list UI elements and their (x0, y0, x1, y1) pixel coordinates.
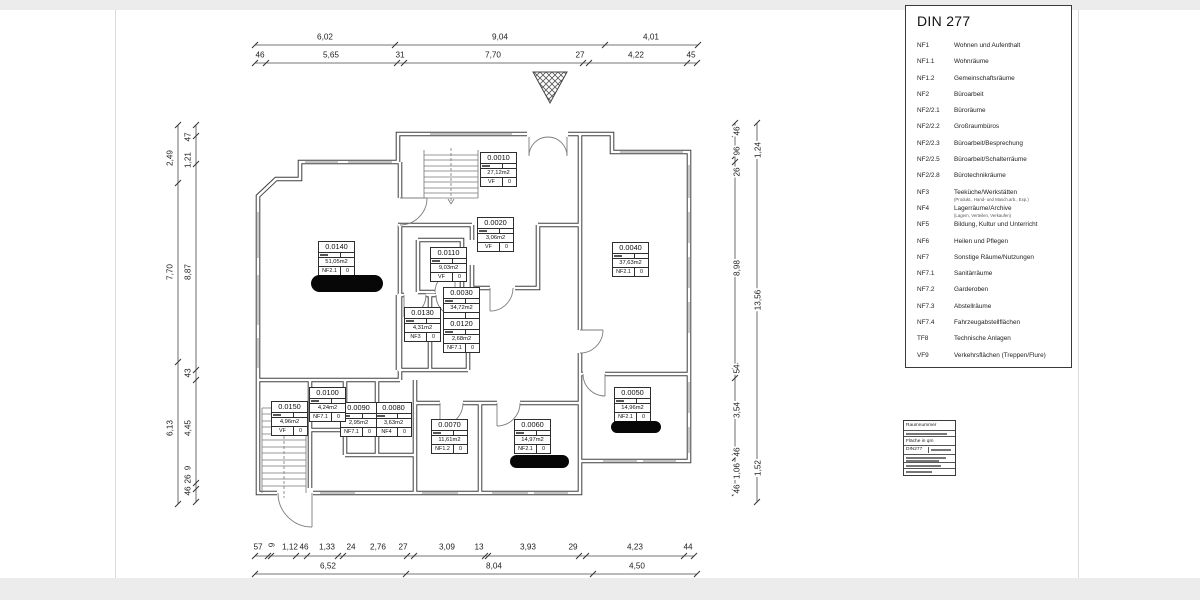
room-usage-row (615, 399, 650, 404)
dimension-label: 4,22 (627, 51, 645, 60)
room-stamp: 0.003034,72m2 (443, 287, 480, 322)
dimension-label: 46 (254, 51, 265, 60)
legend-item-label: Bürotechnikräume (954, 172, 1006, 179)
room-din-value: 0 (500, 243, 513, 251)
legend-item-code: NF2/2.2 (917, 123, 954, 130)
room-stamp: 0.006014,97m2NF2.10 (514, 419, 551, 454)
room-class-row: NF7.10 (310, 413, 345, 421)
legend-item: NF7.3Abstellräume (917, 303, 1071, 319)
dimension-label: 4,01 (642, 33, 660, 42)
room-area: 4,31m2 (405, 324, 440, 333)
room-number: 0.0140 (319, 242, 354, 253)
stamp-key-extra-row (904, 469, 955, 475)
legend-item-label: Bildung, Kultur und Unterricht (954, 221, 1037, 228)
legend-item-code: NF1.1 (917, 58, 954, 65)
room-din-value: 0 (294, 427, 307, 435)
room-din-value: 0 (503, 178, 516, 186)
legend-item: NF5Bildung, Kultur und Unterricht (917, 221, 1071, 237)
room-din-code: VF (431, 273, 453, 281)
room-number: 0.0040 (613, 243, 648, 254)
legend-item-code: NF2 (917, 91, 954, 98)
dimension-label: 46 (733, 446, 742, 457)
room-din-value: 0 (363, 428, 376, 436)
legend-item-label: Wohnen und Aufenthalt (954, 42, 1020, 49)
dimension-label: 7,70 (484, 51, 502, 60)
dimension-label: 27 (574, 51, 585, 60)
legend-item-label: Büroarbeit (954, 91, 984, 98)
drawing-sheet: DIN 277 NF1Wohnen und AufenthaltNF1.1Woh… (0, 0, 1200, 600)
dimension-label: 1,12 (281, 543, 299, 552)
dimension-label: 1,52 (754, 459, 763, 477)
dimension-label: 6,02 (316, 33, 334, 42)
legend-item: NF7.1Sanitärräume (917, 270, 1071, 286)
legend-item-code: NF3 (917, 189, 954, 196)
legend-item-code: NF2/2.8 (917, 172, 954, 179)
room-area: 3,06m2 (478, 234, 513, 243)
room-stamp: 0.00803,63m2NF40 (375, 402, 412, 437)
stamp-key-din: DIN277 (906, 447, 929, 453)
dimension-label: 46 (184, 485, 193, 496)
room-class-row: NF7.10 (341, 428, 376, 436)
dimension-label: 26 (733, 166, 742, 177)
room-usage-row (319, 253, 354, 258)
legend-item-label: Garderoben (954, 286, 988, 293)
top-stair (424, 148, 478, 204)
room-number: 0.0150 (272, 402, 307, 413)
room-din-code: VF (481, 178, 503, 186)
legend-item-code: TF8 (917, 335, 954, 342)
redaction-bar (611, 421, 661, 433)
room-number: 0.0090 (341, 403, 376, 414)
room-area: 4,96m2 (272, 418, 307, 427)
room-din-code: VF (272, 427, 294, 435)
dimension-label: 6,13 (166, 419, 175, 437)
room-din-code: VF (478, 243, 500, 251)
legend-item-code: NF1.2 (917, 75, 954, 82)
legend-item: NF1.2Gemeinschaftsräume (917, 75, 1071, 91)
stamp-key-area: Fläche in qm (904, 437, 955, 446)
room-class-row: NF2.10 (319, 267, 354, 275)
legend-item-code: NF1 (917, 42, 954, 49)
room-din-value: 0 (453, 273, 466, 281)
legend-item: NF3Teeküche/Werkstätten(Produkt., Hand- … (917, 189, 1071, 205)
dimension-label: 43 (184, 367, 193, 378)
room-usage-row (432, 431, 467, 436)
legend-item-label: Büroräume (954, 107, 986, 114)
legend-item-label: Wohnräume (954, 58, 989, 65)
room-stamp-key: Raumnummer Fläche in qm DIN277 (903, 420, 956, 476)
legend-item-code: NF7.3 (917, 303, 954, 310)
dimension-label: 57 (252, 543, 263, 552)
room-area: 3,63m2 (376, 419, 411, 428)
dimension-label: 4,23 (626, 543, 644, 552)
stamp-key-extra-row (904, 455, 955, 463)
room-stamp: 0.01004,24m2NF7.10 (309, 387, 346, 422)
room-din-code: NF2.1 (615, 413, 637, 421)
legend-item-code: NF2/2.3 (917, 140, 954, 147)
room-usage-row (310, 399, 345, 404)
dimension-label: 8,98 (733, 259, 742, 277)
dimension-label: 45 (685, 51, 696, 60)
room-din-code: NF2.1 (515, 445, 537, 453)
room-number: 0.0100 (310, 388, 345, 399)
dimension-label: 9,04 (491, 33, 509, 42)
dimension-label: 1,24 (754, 141, 763, 159)
room-area: 34,72m2 (444, 304, 479, 313)
room-number: 0.0030 (444, 288, 479, 299)
legend-item: NF7.2Garderoben (917, 286, 1071, 302)
legend-item-code: NF7.1 (917, 270, 954, 277)
room-stamp: 0.01504,96m2VF0 (271, 401, 308, 436)
dimension-label: 46 (298, 543, 309, 552)
room-stamp: 0.01304,31m2NF30 (404, 307, 441, 342)
room-din-code: NF7.1 (444, 344, 466, 352)
room-din-code: NF2.1 (613, 268, 635, 276)
legend-item-label: Lagerräume/Archive(Lagern, Verteilen, Ve… (954, 205, 1012, 219)
dimension-label: 96 (733, 145, 742, 156)
room-din-value: 0 (332, 413, 345, 421)
room-din-value: 0 (341, 267, 354, 275)
dimension-label: 46 (733, 483, 742, 494)
legend-item: NF2/2.5Büroarbeit/Schalterräume (917, 156, 1071, 172)
room-din-value: 0 (427, 333, 440, 341)
dimension-label: 2,49 (166, 149, 175, 167)
legend-item-code: NF4 (917, 205, 954, 212)
legend-item-code: NF7.4 (917, 319, 954, 326)
dimension-label: 4,45 (184, 419, 193, 437)
room-din-code: NF2.1 (319, 267, 341, 275)
room-class-row: VF0 (481, 178, 516, 186)
legend-item: NF2Büroarbeit (917, 91, 1071, 107)
legend-item: NF2/2.2Großraumbüros (917, 123, 1071, 139)
dimension-label: 9 (184, 465, 193, 472)
legend-item-label: Abstellräume (954, 303, 991, 310)
redaction-bar (510, 455, 569, 468)
dimension-label: 8,04 (485, 562, 503, 571)
room-number: 0.0060 (515, 420, 550, 431)
door-swings (278, 137, 605, 527)
dimension-label: 3,54 (733, 401, 742, 419)
room-usage-row (444, 330, 479, 335)
room-area: 14,96m2 (615, 404, 650, 413)
room-class-row: NF2.10 (613, 268, 648, 276)
dimension-label: 31 (394, 51, 405, 60)
redaction-bar (311, 275, 383, 292)
dimension-label: 4,50 (628, 562, 646, 571)
room-area: 4,24m2 (310, 404, 345, 413)
room-class-row: NF2.10 (615, 413, 650, 421)
room-number: 0.0130 (405, 308, 440, 319)
dimension-label: 47 (184, 131, 193, 142)
room-din-value: 0 (537, 445, 550, 453)
legend-item-label: Gemeinschaftsräume (954, 75, 1015, 82)
room-usage-row (481, 164, 516, 169)
room-usage-row (515, 431, 550, 436)
legend-item-code: NF2/2.1 (917, 107, 954, 114)
room-stamp: 0.014051,05m2NF2.10 (318, 241, 355, 276)
room-usage-row (405, 319, 440, 324)
dimension-label: 7,70 (166, 263, 175, 281)
dimension-label: 13 (473, 543, 484, 552)
din277-legend: DIN 277 NF1Wohnen und AufenthaltNF1.1Woh… (905, 5, 1072, 368)
dimension-label: 8,87 (184, 263, 193, 281)
dimension-label: 5,65 (322, 51, 340, 60)
room-number: 0.0070 (432, 420, 467, 431)
legend-item-label: Verkehrsflächen (Treppen/Flure) (954, 352, 1046, 359)
room-stamp: 0.004037,63m2NF2.10 (612, 242, 649, 277)
room-number: 0.0020 (478, 218, 513, 229)
legend-item-label: Büroarbeit/Schalterräume (954, 156, 1027, 163)
dimension-label: 9 (268, 542, 277, 549)
room-class-row: NF1.20 (432, 445, 467, 453)
room-din-code: NF1.2 (432, 445, 454, 453)
dimension-label: 1,21 (184, 151, 193, 169)
room-area: 2,68m2 (444, 335, 479, 344)
dimension-label: 54 (733, 363, 742, 374)
entrance-marker-icon (533, 72, 567, 103)
room-usage-row (341, 414, 376, 419)
room-din-value: 0 (466, 344, 479, 352)
legend-item-label: Heilen und Pflegen (954, 238, 1008, 245)
legend-item: TF8Technische Anlagen (917, 335, 1071, 351)
dimension-label: 3,09 (438, 543, 456, 552)
stamp-key-din-row: DIN277 (904, 446, 955, 455)
room-class-row: NF30 (405, 333, 440, 341)
legend-item-label: Sanitärräume (954, 270, 992, 277)
legend-item: NF2/2.8Bürotechnikräume (917, 172, 1071, 188)
legend-item-code: VF9 (917, 352, 954, 359)
dimension-label: 24 (345, 543, 356, 552)
legend-item-label: Fahrzeugabstellflächen (954, 319, 1020, 326)
room-number: 0.0050 (615, 388, 650, 399)
legend-item-sublabel: (Produkt., Hand- und Masch.arb., Exp.) (954, 196, 1029, 203)
room-din-code: NF4 (376, 428, 398, 436)
room-usage-row (376, 414, 411, 419)
legend-item: NF2/2.3Büroarbeit/Besprechung (917, 140, 1071, 156)
room-class-row: NF7.10 (444, 344, 479, 352)
room-stamp: 0.00203,06m2VF0 (477, 217, 514, 252)
dimension-label: 27 (397, 543, 408, 552)
room-area: 27,12m2 (481, 169, 516, 178)
room-number: 0.0120 (444, 319, 479, 330)
legend-item: NF2/2.1Büroräume (917, 107, 1071, 123)
stamp-key-room-number: Raumnummer (904, 421, 955, 431)
legend-item: NF7Sonstige Räume/Nutzungen (917, 254, 1071, 270)
legend-item-code: NF2/2.5 (917, 156, 954, 163)
legend-item-code: NF5 (917, 221, 954, 228)
room-din-code: NF3 (405, 333, 427, 341)
legend-item-label: Teeküche/Werkstätten(Produkt., Hand- und… (954, 189, 1029, 203)
legend-item-sublabel: (Lagern, Verteilen, Verkaufen) (954, 212, 1012, 219)
room-din-value: 0 (398, 428, 411, 436)
legend-item-code: NF7 (917, 254, 954, 261)
room-class-row: VF0 (478, 243, 513, 251)
legend-item: NF7.4Fahrzeugabstellflächen (917, 319, 1071, 335)
legend-item-label: Sonstige Räume/Nutzungen (954, 254, 1034, 261)
legend-item: NF6Heilen und Pflegen (917, 238, 1071, 254)
room-number: 0.0010 (481, 153, 516, 164)
room-area: 2,95m2 (341, 419, 376, 428)
room-din-value: 0 (635, 268, 648, 276)
room-din-value: 0 (454, 445, 467, 453)
room-area: 14,97m2 (515, 436, 550, 445)
dimension-label: 26 (184, 473, 193, 484)
room-stamp: 0.007011,61m2NF1.20 (431, 419, 468, 454)
room-usage-row (272, 413, 307, 418)
dimension-label: 13,56 (754, 289, 763, 312)
room-number: 0.0110 (431, 248, 466, 259)
legend-item: VF9Verkehrsflächen (Treppen/Flure) (917, 352, 1071, 368)
room-stamp: 0.01109,03m2VF0 (430, 247, 467, 282)
legend-item-code: NF7.2 (917, 286, 954, 293)
legend-title: DIN 277 (917, 13, 1071, 29)
legend-item-label: Großraumbüros (954, 123, 999, 130)
legend-item: NF1.1Wohnräume (917, 58, 1071, 74)
room-area: 37,63m2 (613, 259, 648, 268)
room-stamp: 0.01202,68m2NF7.10 (443, 318, 480, 353)
legend-item: NF1Wohnen und Aufenthalt (917, 42, 1071, 58)
room-class-row: VF0 (431, 273, 466, 281)
dimension-label: 2,76 (369, 543, 387, 552)
room-din-code: NF7.1 (341, 428, 363, 436)
dimension-label: 3,93 (519, 543, 537, 552)
dimension-label: 46 (733, 125, 742, 136)
room-area: 9,03m2 (431, 264, 466, 273)
room-class-row: VF0 (272, 427, 307, 435)
room-usage-row (613, 254, 648, 259)
room-din-code: NF7.1 (310, 413, 332, 421)
room-stamp: 0.005014,96m2NF2.10 (614, 387, 651, 422)
dimension-label: 44 (682, 543, 693, 552)
room-class-row: NF40 (376, 428, 411, 436)
dimension-label: 29 (567, 543, 578, 552)
room-area: 51,05m2 (319, 258, 354, 267)
legend-item-label: Büroarbeit/Besprechung (954, 140, 1023, 147)
room-usage-row (444, 299, 479, 304)
room-class-row: NF2.10 (515, 445, 550, 453)
legend-item-code: NF6 (917, 238, 954, 245)
room-stamp: 0.001027,12m2VF0 (480, 152, 517, 187)
room-area: 11,61m2 (432, 436, 467, 445)
room-number: 0.0080 (376, 403, 411, 414)
dimension-label: 1,06 (733, 462, 742, 480)
dimension-label: 6,52 (319, 562, 337, 571)
legend-item-label: Technische Anlagen (954, 335, 1011, 342)
room-usage-row (431, 259, 466, 264)
room-din-value: 0 (637, 413, 650, 421)
room-usage-row (478, 229, 513, 234)
dimension-label: 1,33 (318, 543, 336, 552)
legend-items: NF1Wohnen und AufenthaltNF1.1WohnräumeNF… (917, 42, 1071, 368)
legend-item: NF4Lagerräume/Archive(Lagern, Verteilen,… (917, 205, 1071, 221)
